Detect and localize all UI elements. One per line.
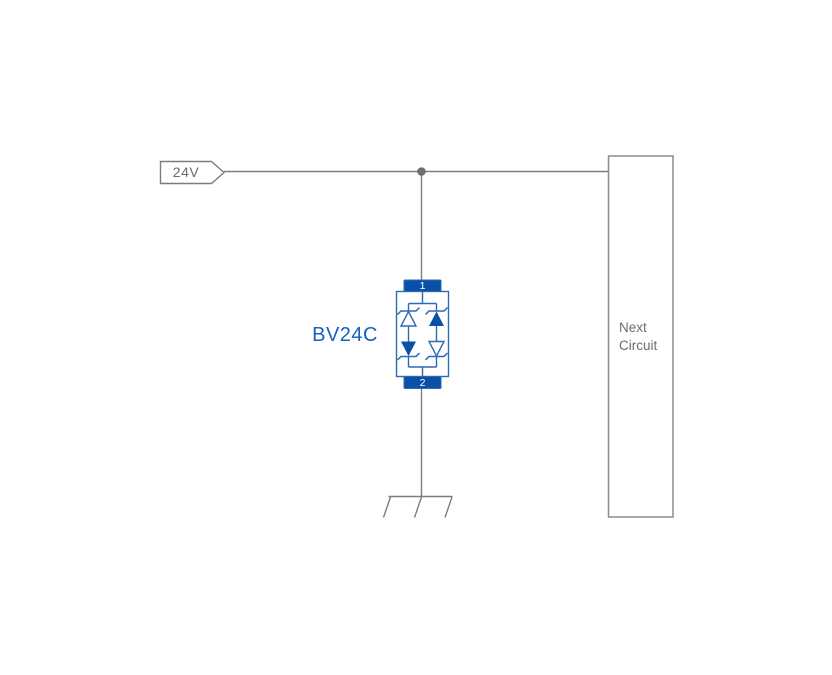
component-label: BV24C [296, 323, 378, 347]
schematic-canvas: 24V BV24C 1 2 Next Circuit [0, 0, 832, 675]
next-circuit-label: Next Circuit [619, 319, 675, 355]
ground-hatch-right [445, 497, 452, 518]
schematic-drawing [0, 0, 832, 675]
junction-dot-icon [417, 167, 426, 176]
tvs-component-bv24c [397, 280, 449, 389]
ground-hatch-left [384, 497, 391, 518]
pin-1-label: 1 [404, 280, 441, 292]
pin-2-label: 2 [404, 377, 441, 389]
net-label-text: 24V [160, 162, 212, 183]
chassis-ground-icon [384, 497, 453, 518]
tvs-body-outline [397, 292, 449, 377]
ground-hatch-middle [415, 497, 422, 518]
